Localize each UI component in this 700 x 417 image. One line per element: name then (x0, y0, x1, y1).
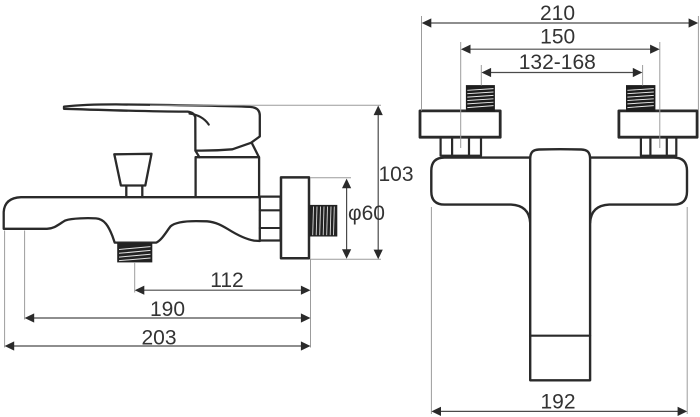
svg-text:192: 192 (540, 391, 575, 414)
svg-text:203: 203 (141, 327, 176, 350)
svg-text:φ60: φ60 (348, 202, 385, 225)
svg-text:210: 210 (540, 2, 575, 25)
svg-text:112: 112 (210, 269, 243, 292)
svg-text:150: 150 (540, 26, 575, 49)
svg-text:132-168: 132-168 (519, 51, 596, 74)
svg-text:103: 103 (379, 163, 414, 186)
svg-text:190: 190 (150, 298, 185, 321)
